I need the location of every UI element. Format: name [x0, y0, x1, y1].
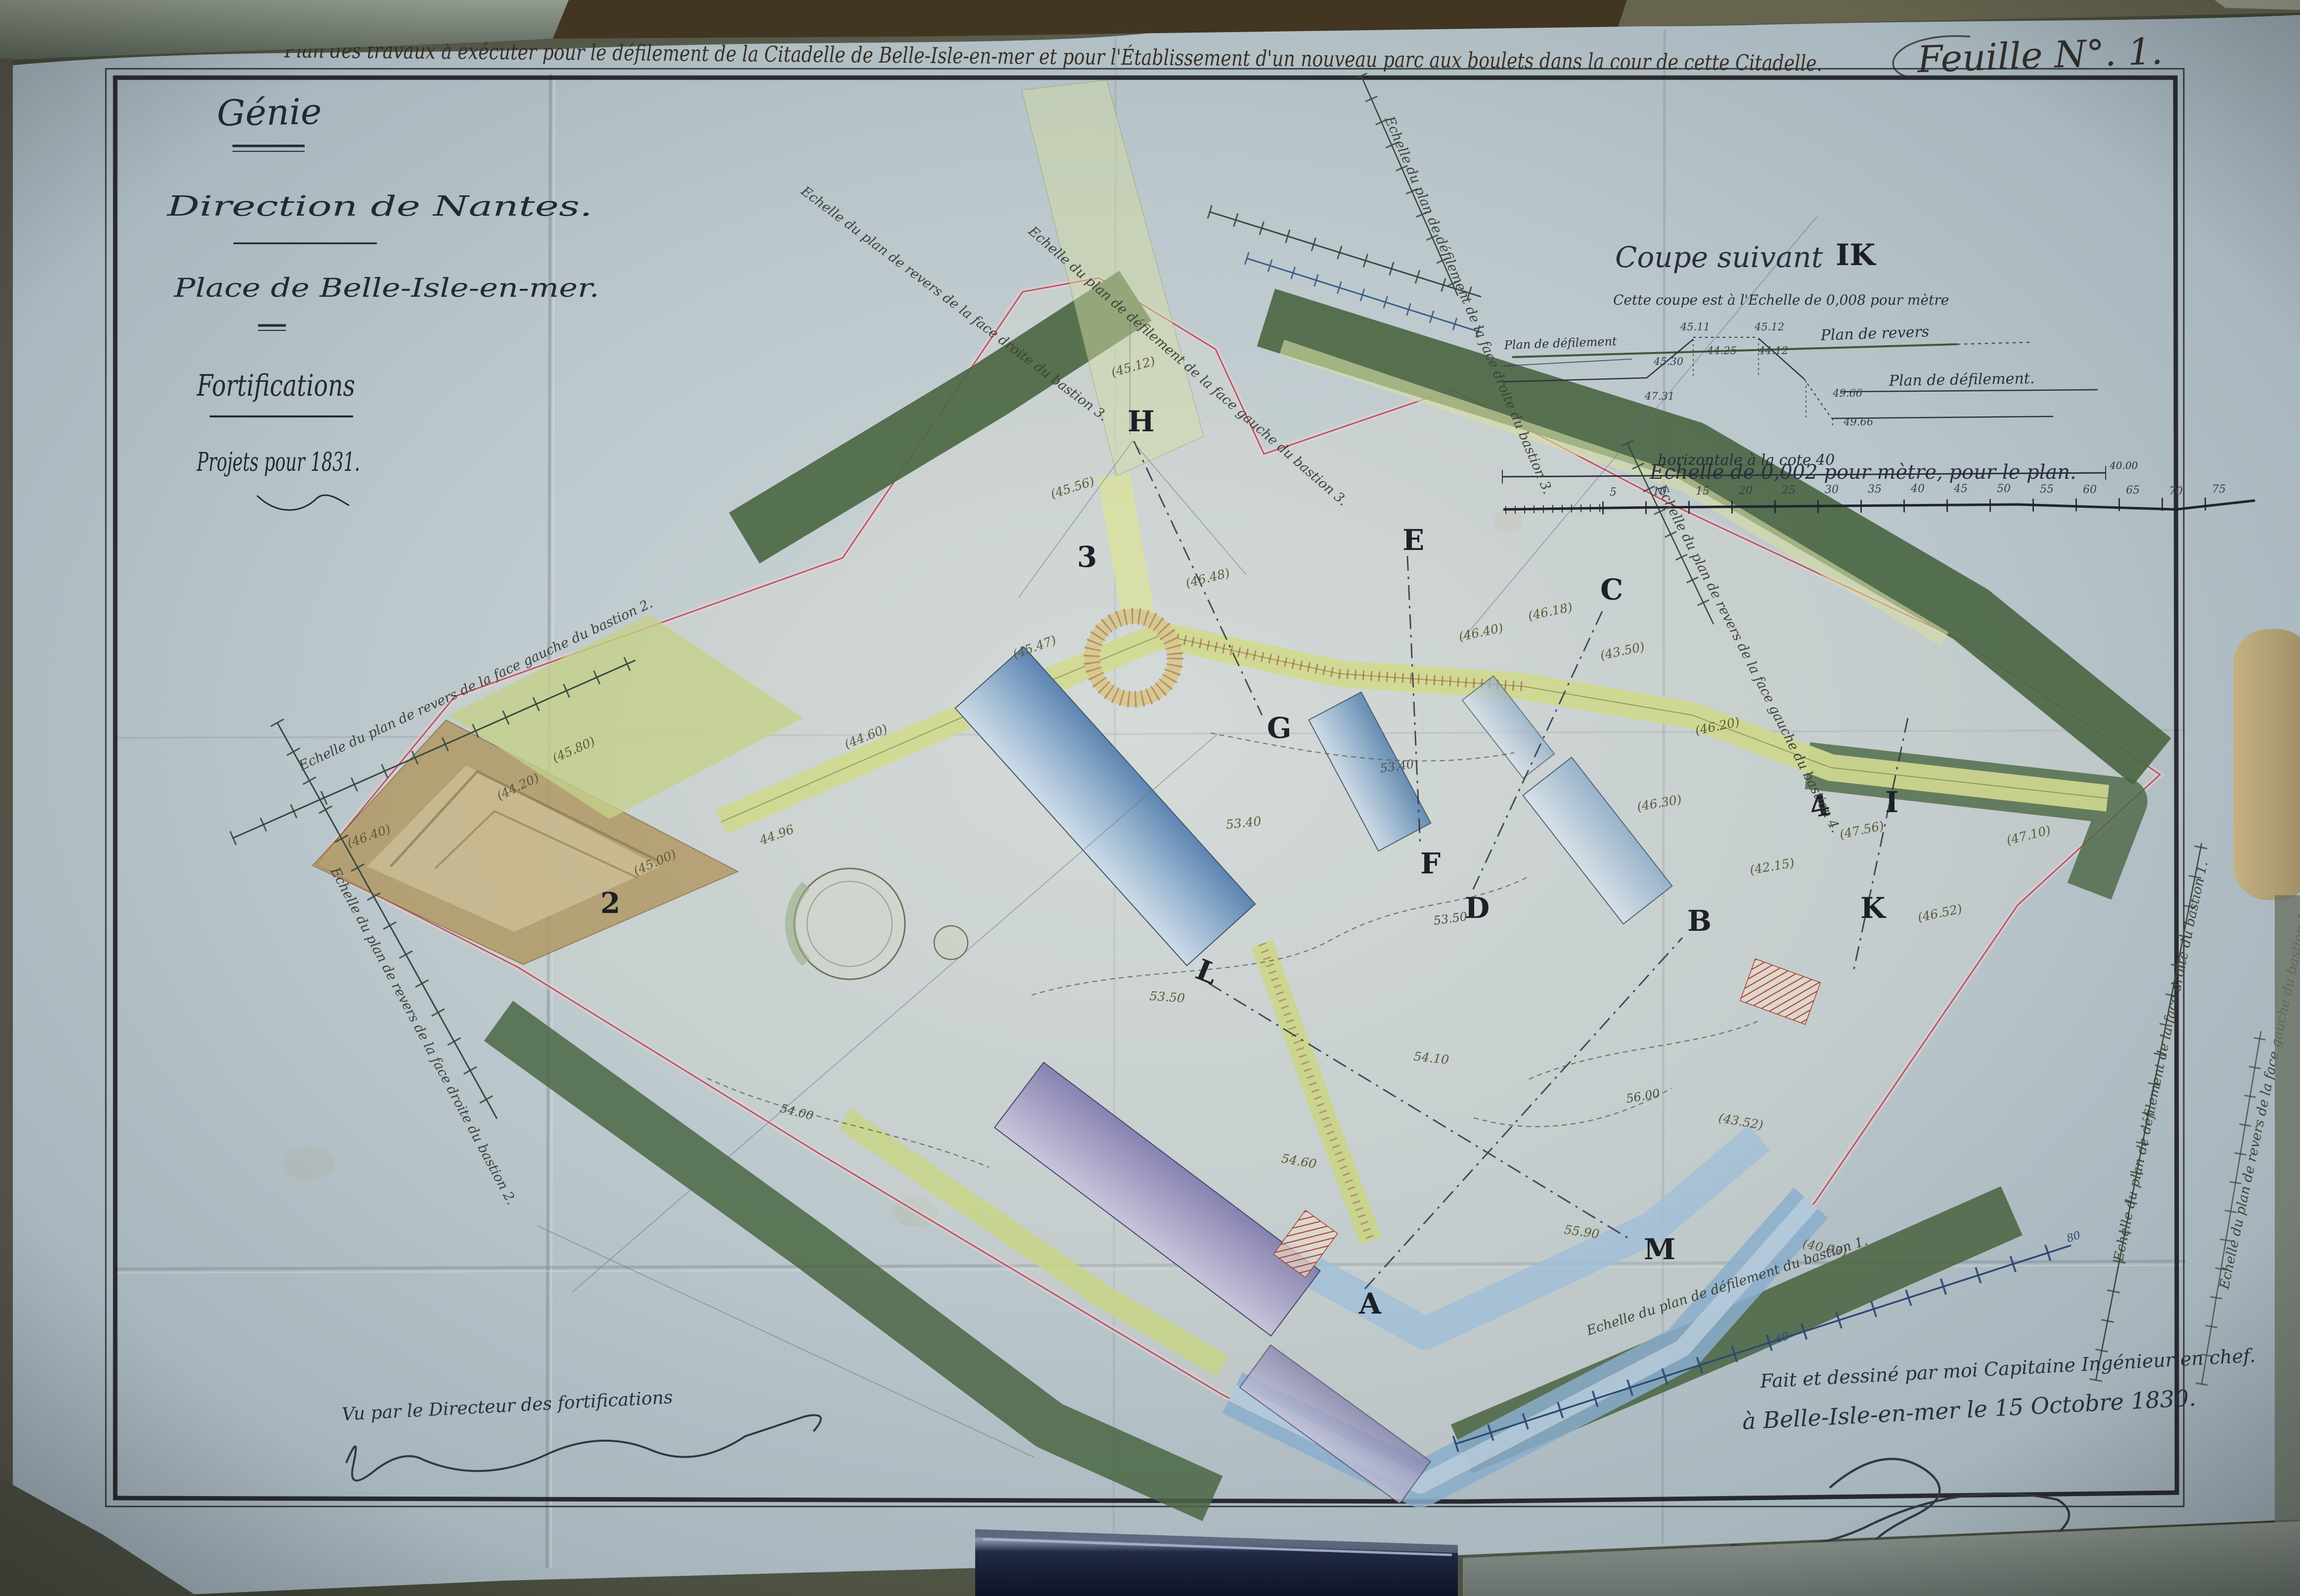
- photo-vignette: [0, 0, 2300, 1596]
- photo-of-fortification-plan: Plan des travaux à exécuter pour le défi…: [0, 0, 2300, 1596]
- plan-canvas: Plan des travaux à exécuter pour le défi…: [0, 0, 2300, 1596]
